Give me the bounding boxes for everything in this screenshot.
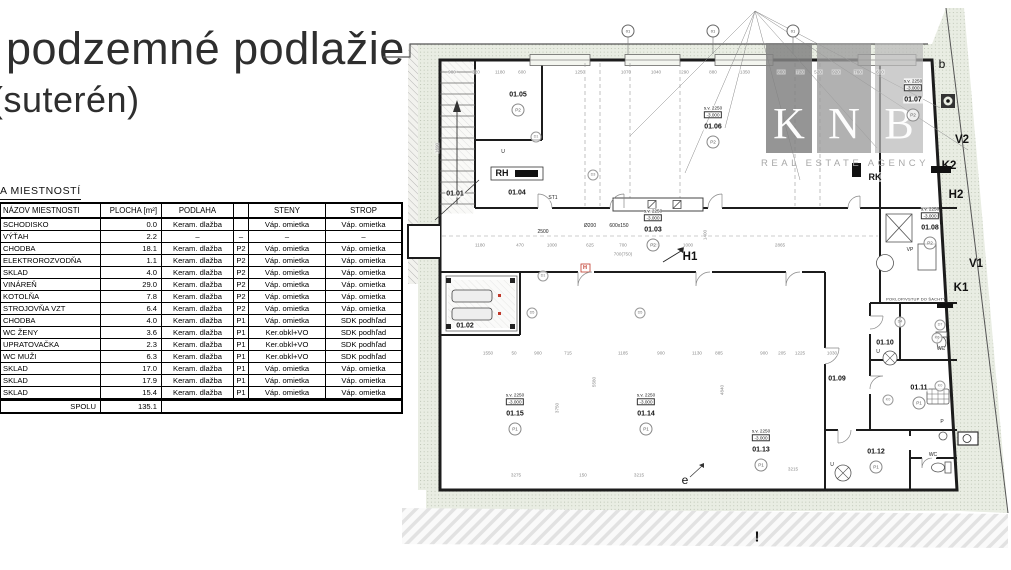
element-tag: D4 [895, 317, 906, 328]
elevation-label: s.v. 2250-3.000 [506, 392, 524, 405]
marker-label: V1 [969, 258, 983, 270]
table-cell: P2 [234, 279, 249, 291]
page-subtitle: (suterén) [0, 82, 140, 118]
room-number-label: 01.12 [866, 449, 886, 456]
marker-label: K2 [942, 160, 957, 172]
element-tag: D1 [538, 271, 549, 282]
marker-label: ! [755, 529, 760, 546]
marker-label: 600x150 [609, 223, 628, 229]
dimension-label: 760 [854, 70, 863, 75]
dimension-label: 1130 [692, 351, 703, 356]
grid-marker: 01 [787, 25, 800, 38]
element-tag: D1 [531, 132, 542, 143]
finish-badge: P1 [870, 461, 883, 474]
elevation-label: s.v. 2250-3.000 [704, 105, 722, 118]
marker-label: POKLOP/VSTUP DO ŠACHTY [886, 297, 946, 302]
dimension-label: 1040 [650, 70, 661, 75]
marker-label: U [830, 462, 834, 468]
dimension-label: 1180 [475, 243, 486, 248]
table-cell: 7.8 [101, 291, 162, 303]
table-cell: 0.0 [101, 218, 162, 231]
table-cell: P1 [234, 363, 249, 375]
dimension-label: 1350 [739, 70, 750, 75]
ceiling-height-label: s.v. 2250 [752, 428, 770, 434]
total-empty-cell [162, 400, 403, 414]
table-cell: SKLAD [1, 267, 101, 279]
table-cell: SKLAD [1, 375, 101, 387]
table-cell: Váp. omietka [249, 303, 326, 315]
table-cell: 2.2 [101, 231, 162, 243]
dimension-label: 1225 [794, 351, 805, 356]
room-number-label: 01.13 [751, 447, 771, 454]
table-cell: 3.6 [101, 327, 162, 339]
elevation-label: s.v. 2250-3.000 [904, 78, 922, 91]
element-tag: D3 [588, 170, 599, 181]
dimension-label: 860 [777, 70, 786, 75]
table-cell: 17.9 [101, 375, 162, 387]
room-number-label: 01.08 [920, 225, 940, 232]
table-cell: Keram. dlažba [162, 315, 234, 327]
floor-plan: K N B REAL ESTATE AGENCY 01.0101.02s.v. … [380, 8, 1011, 570]
table-cell: 1.1 [101, 255, 162, 267]
table-cell: 17.0 [101, 363, 162, 375]
dimension-label: 4840 [720, 384, 725, 395]
marker-label: H2 [949, 189, 964, 201]
slide-root: podzemné podlažie (suterén) A MIESTNOSTÍ… [0, 0, 1011, 570]
table-cell: P1 [234, 375, 249, 387]
finish-badge: P2 [512, 104, 525, 117]
ceiling-height-label: s.v. 2250 [644, 208, 662, 214]
dimension-label: 885 [715, 351, 724, 356]
marker-label: V2 [955, 134, 969, 146]
table-cell: 2.3 [101, 339, 162, 351]
floor-level-label: -3.000 [704, 111, 722, 119]
table-cell: Keram. dlažba [162, 218, 234, 231]
room-number-label: 01.14 [636, 411, 656, 418]
elevation-label: s.v. 2250-3.000 [637, 392, 655, 405]
ceiling-height-label: s.v. 2250 [506, 392, 524, 398]
table-cell: Keram. dlažba [162, 255, 234, 267]
dimension-label: 520 [814, 70, 823, 75]
ceiling-height-label: s.v. 2250 [637, 392, 655, 398]
dimension-label: 900 [534, 351, 543, 356]
table-cell: Váp. omietka [249, 267, 326, 279]
table-cell: 4.0 [101, 315, 162, 327]
legend-heading: A MIESTNOSTÍ [0, 185, 81, 200]
dimension-label: 5580 [592, 376, 597, 387]
table-cell: Keram. dlažba [162, 375, 234, 387]
table-cell: Keram. dlažba [162, 351, 234, 363]
marker-label: 2500 [537, 229, 548, 235]
total-value: 135.1 [101, 400, 162, 414]
room-number-label: 01.09 [827, 376, 847, 383]
table-cell: Váp. omietka [249, 363, 326, 375]
table-row: KOTOLŇA7.8Keram. dlažbaP2Váp. omietkaVáp… [1, 291, 403, 303]
table-row: SKLAD17.0Keram. dlažbaP1Váp. omietkaVáp.… [1, 363, 403, 375]
room-number-label: 01.15 [505, 411, 525, 418]
dimension-label: 600 [518, 70, 527, 75]
table-cell: Keram. dlažba [162, 267, 234, 279]
table-cell: VÝŤAH [1, 231, 101, 243]
table-row: VINÁREŇ29.0Keram. dlažbaP2Váp. omietkaVá… [1, 279, 403, 291]
room-number-label: 01.11 [909, 385, 928, 392]
dimension-label: 2865 [774, 243, 785, 248]
table-cell [234, 218, 249, 231]
room-number-label: 01.06 [703, 124, 723, 131]
dimension-label: 715 [564, 351, 573, 356]
table-cell: SKLAD [1, 387, 101, 400]
finish-badge: P2 [907, 109, 920, 122]
legend-table-body: SCHODISKO0.0Keram. dlažbaVáp. omietkaVáp… [1, 218, 403, 400]
table-row: ELEKTROROZVODŇA1.1Keram. dlažbaP2Váp. om… [1, 255, 403, 267]
table-cell: WC MUŽI [1, 351, 101, 363]
dimension-label: 470 [516, 243, 525, 248]
col-header-floor: PODLAHA [162, 203, 234, 218]
table-row: WC MUŽI6.3Keram. dlažbaP1Ker.obkl+VOSDK … [1, 351, 403, 363]
dimension-label: 1690 [435, 142, 440, 153]
dimension-label: 625 [586, 243, 595, 248]
table-cell: Keram. dlažba [162, 387, 234, 400]
table-cell: P1 [234, 339, 249, 351]
table-cell: Váp. omietka [249, 375, 326, 387]
dimension-label: 3275 [510, 473, 521, 478]
table-cell: – [249, 231, 326, 243]
element-tag: D5 [527, 308, 538, 319]
table-cell: P1 [234, 351, 249, 363]
grid-marker: 01 [622, 25, 635, 38]
table-cell: Váp. omietka [249, 279, 326, 291]
finish-badge: P2 [707, 136, 720, 149]
table-cell: P1 [234, 327, 249, 339]
table-cell: UPRATOVAČKA [1, 339, 101, 351]
table-row: SKLAD15.4Keram. dlažbaP1Váp. omietkaVáp.… [1, 387, 403, 400]
table-cell: 18.1 [101, 243, 162, 255]
table-cell: 6.4 [101, 303, 162, 315]
table-cell: Keram. dlažba [162, 243, 234, 255]
marker-label: b [939, 57, 946, 71]
col-header-code [234, 203, 249, 218]
marker-label: e [682, 473, 689, 487]
room-number-label: 01.02 [455, 323, 475, 330]
marker-label: WC [937, 346, 945, 352]
plan-overlay: 01.0101.02s.v. 2250-3.00001.03P201.0401.… [380, 8, 1011, 570]
dimension-label: 900 [657, 351, 666, 356]
legend-total-row: SPOLU 135.1 [1, 400, 403, 414]
table-cell: 6.3 [101, 351, 162, 363]
marker-label: H1 [683, 251, 698, 263]
finish-badge: P1 [640, 423, 653, 436]
table-cell: Váp. omietka [249, 255, 326, 267]
col-header-name: NÁZOV MIESTNOSTI [1, 203, 101, 218]
dimension-label: 1550 [482, 351, 493, 356]
elevation-label: s.v. 2250-3.000 [752, 428, 770, 441]
dimension-label: 1185 [618, 351, 629, 356]
dimension-label: 1400 [703, 229, 708, 240]
marker-label: U [501, 149, 505, 155]
marker-label: VP [907, 247, 914, 253]
room-legend: NÁZOV MIESTNOSTI PLOCHA [m²] PODLAHA STE… [0, 202, 386, 414]
table-cell: Váp. omietka [249, 315, 326, 327]
marker-label: ST1 [548, 195, 557, 201]
dimension-label: 3750 [555, 402, 560, 413]
table-cell: – [162, 231, 234, 243]
ceiling-height-label: s.v. 2250 [904, 78, 922, 84]
table-cell: 29.0 [101, 279, 162, 291]
table-cell: Ker.obkl+VO [249, 339, 326, 351]
dimension-label: 320 [472, 70, 481, 75]
room-number-label: 01.01 [445, 191, 465, 198]
marker-label: Ø200 [584, 223, 596, 229]
table-cell: CHODBA [1, 243, 101, 255]
dimension-label: 3215 [787, 467, 798, 472]
total-label: SPOLU [1, 400, 101, 414]
floor-level-label: -3.000 [637, 398, 655, 406]
dimension-label: 900 [760, 351, 769, 356]
table-cell: WC ŽENY [1, 327, 101, 339]
dimension-label: 1070 [620, 70, 631, 75]
table-cell: Keram. dlažba [162, 291, 234, 303]
marker-label: H [583, 265, 587, 271]
floor-level-label: -3.000 [506, 398, 524, 406]
table-cell: 4.0 [101, 267, 162, 279]
ceiling-height-label: s.v. 2250 [704, 105, 722, 111]
dimension-label: 205 [778, 351, 787, 356]
legend-header-row: NÁZOV MIESTNOSTI PLOCHA [m²] PODLAHA STE… [1, 203, 403, 218]
table-cell: Keram. dlažba [162, 327, 234, 339]
finish-badge: P1 [509, 423, 522, 436]
table-cell: P1 [234, 387, 249, 400]
table-row: VÝŤAH2.2–––– [1, 231, 403, 243]
table-row: SKLAD4.0Keram. dlažbaP2Váp. omietkaVáp. … [1, 267, 403, 279]
table-cell: P1 [234, 315, 249, 327]
finish-badge: P2 [647, 239, 660, 252]
dimension-label: 150 [579, 473, 588, 478]
table-cell: P2 [234, 255, 249, 267]
element-tag: D5 [635, 308, 646, 319]
dimension-label: 1000 [682, 243, 693, 248]
table-cell: 15.4 [101, 387, 162, 400]
floor-level-label: -3.000 [904, 84, 922, 92]
table-cell: – [234, 231, 249, 243]
dimension-label: 1030 [826, 351, 837, 356]
element-tag: K6 [932, 333, 943, 344]
ceiling-height-label: s.v. 2250 [921, 206, 939, 212]
table-cell: Ker.obkl+VO [249, 351, 326, 363]
room-number-label: 01.04 [507, 190, 527, 197]
finish-badge: P1 [913, 397, 926, 410]
table-cell: P2 [234, 267, 249, 279]
element-tag: K0 [883, 395, 894, 406]
dimension-label: 880 [709, 70, 718, 75]
table-cell: Váp. omietka [249, 243, 326, 255]
table-cell: Váp. omietka [249, 387, 326, 400]
table-cell: P2 [234, 243, 249, 255]
room-number-label: 01.03 [643, 227, 663, 234]
marker-label: RK [869, 172, 882, 182]
table-cell: SCHODISKO [1, 218, 101, 231]
dimension-label: 3215 [633, 473, 644, 478]
table-cell: VINÁREŇ [1, 279, 101, 291]
marker-label: K1 [954, 282, 969, 294]
dimension-label: 1000 [546, 243, 557, 248]
table-cell: CHODBA [1, 315, 101, 327]
table-row: CHODBA18.1Keram. dlažbaP2Váp. omietkaVáp… [1, 243, 403, 255]
table-row: SCHODISKO0.0Keram. dlažbaVáp. omietkaVáp… [1, 218, 403, 231]
dimension-label: 610 [876, 70, 885, 75]
marker-label: WC [929, 452, 937, 458]
table-cell: STROJOVŇA VZT [1, 303, 101, 315]
dimension-label: 980 [448, 70, 457, 75]
dimension-label: 700 [619, 243, 628, 248]
col-header-walls: STENY [249, 203, 326, 218]
page-title: podzemné podlažie [6, 26, 405, 71]
col-header-area: PLOCHA [m²] [101, 203, 162, 218]
dimension-label: 50 [511, 351, 517, 356]
table-cell: Váp. omietka [249, 291, 326, 303]
table-row: STROJOVŇA VZT6.4Keram. dlažbaP2Váp. omie… [1, 303, 403, 315]
element-tag: K0 [935, 381, 946, 392]
elevation-label: s.v. 2250-3.000 [921, 206, 939, 219]
table-cell: P2 [234, 303, 249, 315]
table-cell: P2 [234, 291, 249, 303]
legend-table: NÁZOV MIESTNOSTI PLOCHA [m²] PODLAHA STE… [0, 202, 403, 414]
marker-label: U [876, 349, 880, 355]
table-cell: ELEKTROROZVODŇA [1, 255, 101, 267]
dimension-label: 1250 [574, 70, 585, 75]
table-cell: Váp. omietka [249, 218, 326, 231]
grid-marker: 01 [707, 25, 720, 38]
table-cell: Keram. dlažba [162, 303, 234, 315]
table-row: CHODBA4.0Keram. dlažbaP1Váp. omietkaSDK … [1, 315, 403, 327]
floor-level-label: -3.000 [921, 212, 939, 220]
floor-level-label: -3.000 [752, 434, 770, 442]
marker-label: RH [496, 168, 509, 178]
table-row: SKLAD17.9Keram. dlažbaP1Váp. omietkaVáp.… [1, 375, 403, 387]
element-tag: D7 [935, 320, 946, 331]
elevation-label: s.v. 2250-3.000 [644, 208, 662, 221]
table-cell: Keram. dlažba [162, 363, 234, 375]
dimension-label: 920 [832, 70, 841, 75]
table-cell: Keram. dlažba [162, 339, 234, 351]
table-cell: KOTOLŇA [1, 291, 101, 303]
finish-badge: P2 [924, 237, 937, 250]
table-row: WC ŽENY3.6Keram. dlažbaP1Ker.obkl+VOSDK … [1, 327, 403, 339]
table-row: UPRATOVAČKA2.3Keram. dlažbaP1Ker.obkl+VO… [1, 339, 403, 351]
dimension-label: 700(750) [613, 252, 632, 257]
dimension-label: 290 [681, 70, 690, 75]
dimension-label: 720 [796, 70, 805, 75]
room-number-label: 01.05 [508, 92, 528, 99]
room-number-label: 01.10 [875, 340, 895, 347]
dimension-label: 1180 [495, 70, 506, 75]
table-cell: Ker.obkl+VO [249, 327, 326, 339]
finish-badge: P1 [755, 459, 768, 472]
marker-label: P [940, 419, 943, 425]
table-cell: SKLAD [1, 363, 101, 375]
table-cell: Keram. dlažba [162, 279, 234, 291]
floor-level-label: -3.000 [644, 214, 662, 222]
room-number-label: 01.07 [903, 97, 923, 104]
